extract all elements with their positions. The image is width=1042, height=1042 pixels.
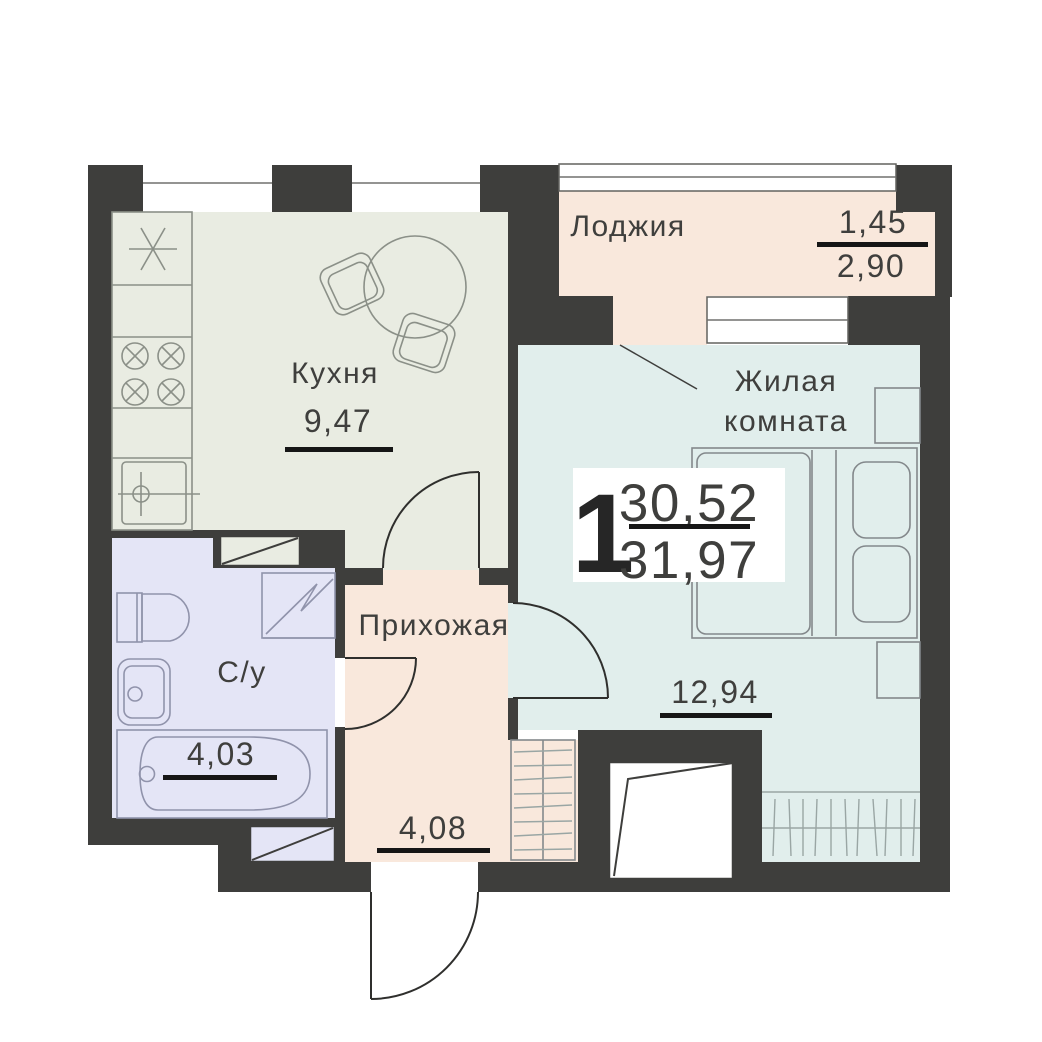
unit-summary-box: 1 30,52 31,97 bbox=[572, 468, 785, 596]
wall bbox=[848, 296, 938, 345]
wall bbox=[508, 296, 613, 345]
bathroom-area: 4,03 bbox=[187, 736, 255, 772]
wall bbox=[345, 568, 383, 585]
area-underline bbox=[285, 447, 393, 452]
wall bbox=[762, 862, 950, 892]
loggia-coefficient-area: 1,45 bbox=[839, 204, 907, 240]
wall bbox=[272, 165, 352, 212]
entrance-door-arc bbox=[371, 892, 478, 999]
loggia-full-area: 2,90 bbox=[837, 248, 905, 284]
entrance-opening bbox=[371, 862, 478, 892]
wall bbox=[480, 165, 559, 212]
wall bbox=[88, 818, 218, 845]
living-label-line2: комната bbox=[724, 405, 848, 438]
wall bbox=[920, 296, 950, 891]
area-underline bbox=[163, 775, 277, 780]
area-underline bbox=[817, 242, 928, 247]
wall bbox=[335, 538, 345, 658]
wall bbox=[508, 212, 559, 296]
fraction-line bbox=[629, 524, 750, 529]
loggia-passage bbox=[613, 296, 707, 345]
wall bbox=[478, 862, 578, 892]
wall bbox=[345, 862, 371, 892]
living-area: 12,94 bbox=[671, 674, 759, 710]
loggia-label: Лоджия bbox=[570, 210, 685, 243]
wall bbox=[335, 727, 345, 818]
kitchen-window-1 bbox=[143, 165, 272, 212]
hallway-label: Прихожая bbox=[358, 609, 509, 642]
wall bbox=[88, 165, 112, 845]
hallway-door-zone bbox=[383, 570, 479, 586]
hallway-area: 4,08 bbox=[399, 810, 467, 846]
floorplan-svg: Лоджия 1,45 2,90 Кухня 9,47 Жилая комнат… bbox=[0, 0, 1042, 1042]
kitchen-label: Кухня bbox=[291, 357, 379, 390]
area-underline bbox=[377, 848, 490, 853]
floorplan-canvas: Лоджия 1,45 2,90 Кухня 9,47 Жилая комнат… bbox=[0, 0, 1042, 1042]
kitchen-window-2 bbox=[352, 165, 480, 212]
wall bbox=[508, 345, 518, 603]
wall bbox=[508, 698, 518, 740]
living-label-line1: Жилая bbox=[735, 365, 837, 398]
total-area: 31,97 bbox=[619, 531, 759, 590]
wall bbox=[935, 191, 952, 297]
area-underline bbox=[660, 713, 772, 718]
kitchen-area: 9,47 bbox=[304, 403, 372, 439]
bathroom-label: С/у bbox=[217, 656, 267, 689]
